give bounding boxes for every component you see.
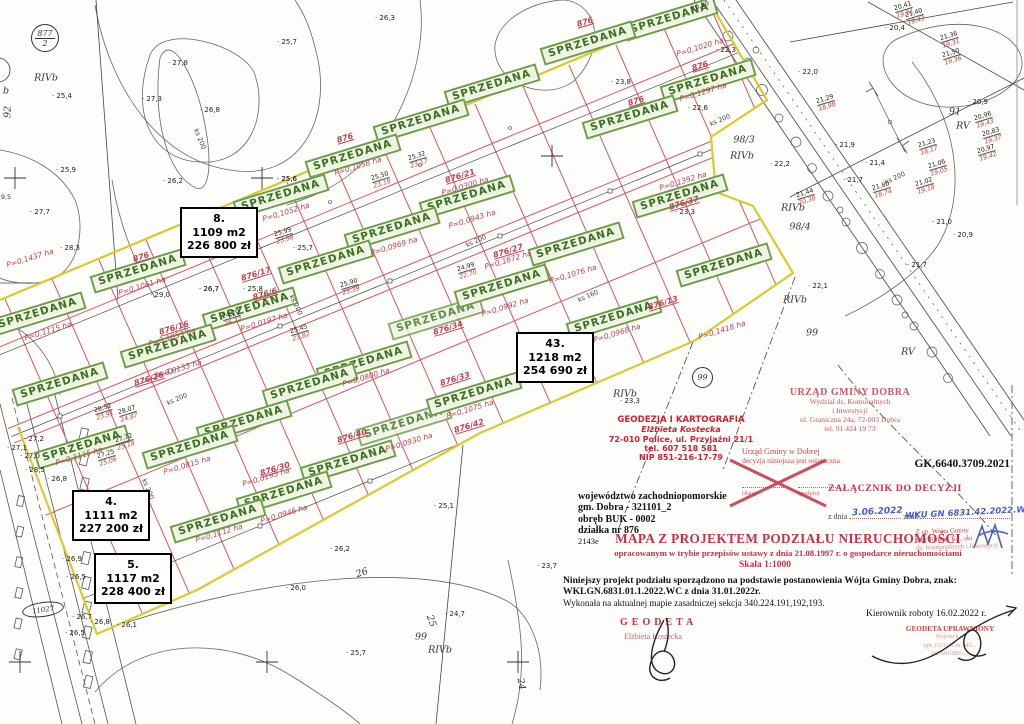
stamp-line: 72-010 Police, ul. Przyjaźni 21/1: [606, 435, 756, 444]
map-label: 26,7: [199, 285, 219, 293]
plot-price: 254 690 zł: [523, 364, 587, 378]
circled-parcel-877-2: 877 2: [31, 24, 59, 52]
map-label: 876/26: [133, 370, 165, 388]
document-subtitle: opracowanym w trybie przepisów ustawy z …: [560, 548, 1016, 558]
map-label: 876/42: [453, 417, 485, 435]
map-label: 25,7: [277, 38, 297, 46]
price-box-plot-5: 5. 1117 m2 228 400 zł: [94, 553, 172, 604]
commune: gm. Dobra - 321101_2: [578, 502, 727, 513]
map-label: 26,1: [117, 621, 137, 629]
parcel-sub: 2: [42, 39, 47, 48]
elevation-pair: 21,23 18,17: [917, 137, 939, 157]
map-label: RIVb: [730, 151, 754, 162]
map-label: 21,7: [843, 176, 863, 184]
cadastral-map-page: SPRZEDANASPRZEDANASPRZEDANASPRZEDANASPRZ…: [0, 0, 1024, 724]
map-label: 25,9: [56, 166, 76, 174]
map-label: 26,2: [330, 545, 350, 553]
map-label: 25,8: [243, 285, 263, 293]
sold-badge: SPRZEDANA: [540, 20, 637, 65]
map-label: ks 160: [576, 288, 599, 304]
elevation-pair: 20,97 19,42: [976, 143, 998, 163]
map-label: 25,7: [293, 244, 313, 252]
map-label: 26,8: [47, 475, 67, 483]
map-label: 23,8: [611, 78, 631, 86]
map-label: 24: [515, 677, 528, 691]
map-label: 9,5: [1, 193, 11, 201]
map-label: RIVb: [613, 389, 637, 400]
map-label: ks 200: [165, 391, 188, 407]
map-label: 21,7: [907, 261, 927, 269]
plot-area: 1117 m2: [101, 572, 165, 586]
map-label: P=0,1437 ha: [5, 247, 54, 270]
map-label: 28,3: [60, 244, 80, 252]
map-label: 876: [576, 15, 595, 28]
map-label: 27,8: [168, 59, 188, 67]
map-label: 98/3: [733, 135, 754, 146]
price-box-plot-8: 8. 1109 m2 226 800 zł: [180, 207, 258, 258]
map-label: 26,5: [66, 573, 86, 581]
elevation-pair: 21,44 20,38: [795, 187, 817, 207]
price-box-plot-4: 4. 1111 m2 227 200 zł: [72, 490, 150, 541]
plot-number: 4.: [79, 495, 143, 509]
map-label: 26,0: [286, 584, 306, 592]
map-label: 22,6: [688, 104, 708, 112]
map-label: 27,3: [142, 95, 162, 103]
plot-number: 43.: [523, 337, 587, 351]
document-title: MAPA Z PROJEKTEM PODZIAŁU NIERUCHOMOŚCI: [568, 531, 1008, 547]
map-label: b: [3, 86, 9, 97]
elevation-pair: 21,29 18,98: [815, 93, 837, 113]
plot-price: 228 400 zł: [101, 585, 165, 599]
map-label: 26,3: [375, 14, 395, 22]
stamp-line: tel. 91 424 19 73: [765, 424, 935, 433]
map-label: P=0,1418 ha: [697, 319, 746, 342]
map-label: 25: [424, 613, 438, 628]
plot-area: 1109 m2: [187, 226, 251, 240]
map-label: 92: [2, 106, 13, 118]
map-label: 22,1: [808, 282, 828, 290]
elevation-pair: 28,07 24,87: [117, 404, 139, 424]
map-label: 23,3: [675, 208, 695, 216]
red-cross-mark: [726, 452, 832, 512]
map-label: 27,2: [24, 435, 44, 443]
map-label: 22,0: [798, 68, 818, 76]
case-number: GK.6640.3709.2021: [860, 458, 1010, 470]
map-label: 26,8: [90, 618, 110, 626]
map-label: 20,4: [885, 24, 905, 32]
map-label: 20,9: [953, 231, 973, 239]
map-label: 26,2: [163, 177, 183, 185]
sold-badge: SPRZEDANA: [676, 242, 773, 287]
map-label: ks 200: [708, 112, 731, 128]
map-label: 27,1: [7, 444, 27, 452]
circled-parcel-99: 99: [692, 367, 713, 388]
map-label: 22,2: [770, 160, 790, 168]
map-label: 876/17: [240, 265, 272, 283]
stamp-line: ul. Graniczna 24a, 72-003 Dobra: [765, 415, 935, 424]
sold-badge: SPRZEDANA: [12, 361, 109, 406]
map-label: 876: [691, 59, 710, 72]
z-dnia-label: z dnia: [828, 512, 847, 521]
elevation-pair: 28,52 23,91: [93, 402, 115, 422]
map-label: 26,9: [62, 555, 82, 563]
stamp-line: i Inwestycji: [765, 406, 935, 415]
map-label: P=0,0943 ha: [447, 208, 496, 231]
map-label: 20,9: [968, 98, 988, 106]
map-label: 21,4: [865, 159, 885, 167]
map-label: 29,0: [150, 291, 170, 299]
map-label: RV: [956, 121, 970, 132]
commune-office-stamp: URZĄD GMINY DOBRA Wydział ds. Komunalnyc…: [765, 388, 935, 433]
plot-number: 8.: [187, 212, 251, 226]
map-label: 26,8: [200, 106, 220, 114]
map-label: RV: [901, 347, 915, 358]
map-label: 21,0: [932, 218, 952, 226]
map-label: 24,7: [445, 610, 465, 618]
map-label: ks 200: [464, 233, 487, 249]
map-label: 876: [336, 131, 355, 144]
plot-area: 1111 m2: [79, 509, 143, 523]
map-label: 23,7: [537, 562, 557, 570]
elevation-pair: 21,06 19,05: [927, 158, 949, 178]
plot-price: 227 200 zł: [79, 522, 143, 536]
manager-signature: [862, 600, 1022, 680]
map-label: RIVb: [428, 645, 452, 656]
stamp-line: Elżbieta Kostecka: [606, 425, 756, 434]
sold-badge: SPRZEDANA: [528, 221, 625, 266]
stamp-line: URZĄD GMINY DOBRA: [765, 388, 935, 397]
map-label: 98/4: [789, 222, 810, 233]
stamp-line: Wydział ds. Komunalnych: [765, 397, 935, 406]
voivodeship: województwo zachodniopomorskie: [578, 491, 727, 502]
parcel-number: 877: [35, 29, 54, 39]
map-label: 27,7: [30, 208, 50, 216]
surveyor-signature: [626, 608, 706, 686]
map-label: 26: [354, 566, 369, 580]
elevation-pair: 25,32 23,17: [407, 150, 429, 170]
elevation-pair: 24,99 22,70: [456, 261, 478, 281]
blue-initials-signature: [968, 520, 1014, 556]
map-label: 25,6: [277, 175, 297, 183]
map-label: 25,7: [346, 649, 366, 657]
plot-number: 5.: [101, 558, 165, 572]
map-label: 91: [949, 107, 961, 118]
map-label: 99: [806, 328, 818, 339]
body-line: WKLGN.6831.01.1.2022.WC z dnia 31.01.202…: [563, 587, 1010, 598]
annex-label: ZAŁĄCZNIK DO DECYZJI: [828, 483, 962, 494]
road-number: 11027: [31, 604, 54, 615]
map-scale: Skala 1:1000: [560, 560, 970, 570]
map-label: 22,3: [716, 46, 736, 54]
district: obręb BUK - 0002: [578, 514, 727, 525]
price-box-plot-43: 43. 1218 m2 254 690 zł: [516, 332, 594, 383]
map-label: P=0,1076 ha: [548, 263, 597, 286]
map-label: 26,5: [65, 629, 85, 637]
map-label: 99: [415, 632, 427, 643]
elevation-pair: 25,90 23,39: [339, 277, 361, 297]
parcel-number: 99: [697, 373, 707, 382]
map-label: 25,4: [52, 92, 72, 100]
map-label: 25,1: [434, 502, 454, 510]
map-label: RIVb: [783, 295, 807, 306]
elevation-pair: 21,02 19,18: [914, 176, 936, 196]
plot-price: 226 800 zł: [187, 239, 251, 253]
elevation-pair: 25,99 23,98: [273, 226, 295, 246]
elevation-pair: 21,50 19,36: [941, 47, 963, 67]
stamp-line: GEODEZJA I KARTOGRAFIA: [606, 416, 756, 425]
map-label: 28,5: [25, 466, 45, 474]
elevation-pair: 25,45 23,82: [289, 323, 311, 343]
map-label: RIVb: [34, 73, 58, 84]
plot-area: 1218 m2: [523, 351, 587, 365]
elevation-pair: 25,50 23,18: [370, 170, 392, 190]
elevation-pair: 21,80 18,74: [871, 180, 893, 200]
map-label: 21,9: [835, 141, 855, 149]
map-label: 27,0: [20, 452, 40, 460]
map-label: ks 200: [192, 127, 208, 150]
map-label: 876/33: [439, 370, 471, 388]
elevation-pair: 20,96 19,43: [973, 110, 995, 130]
